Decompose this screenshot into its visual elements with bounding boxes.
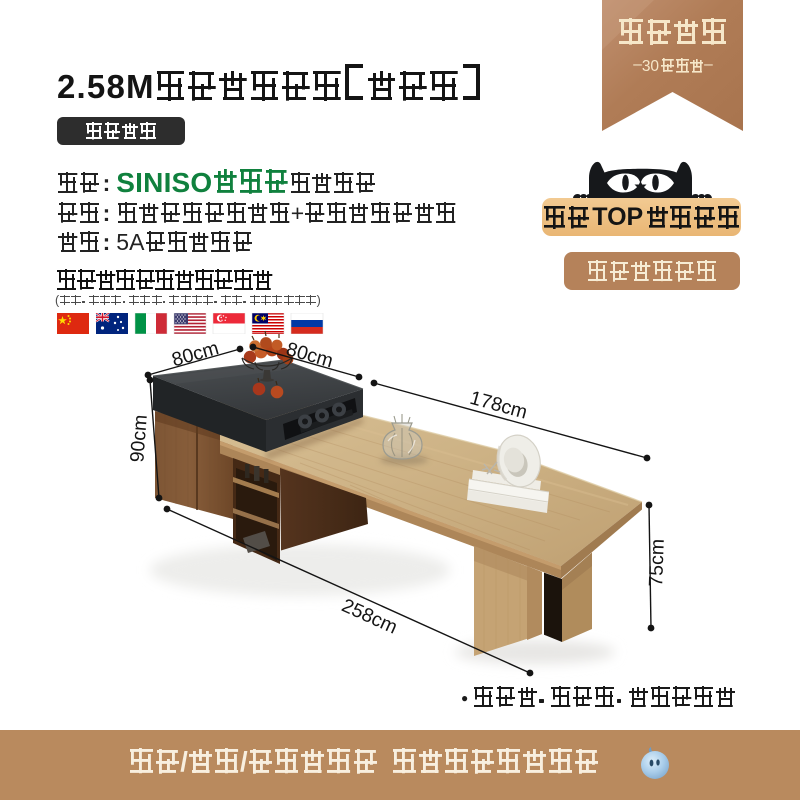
svg-text:80cm: 80cm [169, 337, 221, 371]
svg-text:75cm: 75cm [645, 539, 669, 587]
svg-text:90cm: 90cm [126, 414, 152, 463]
svg-text:178cm: 178cm [467, 387, 529, 424]
